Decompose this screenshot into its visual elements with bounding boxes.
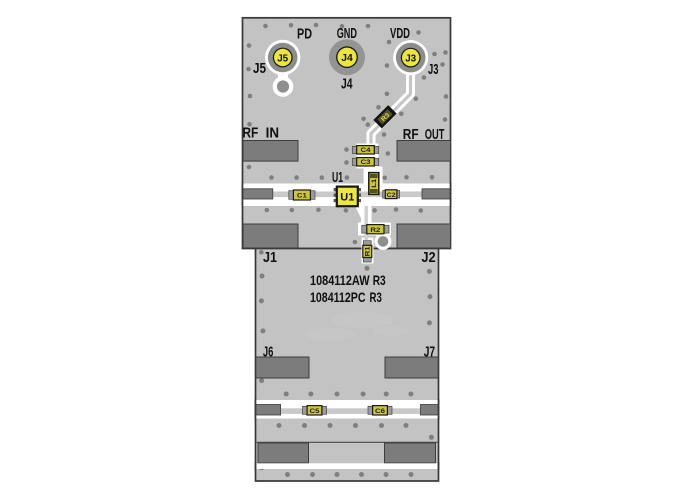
svg-text:J5: J5 bbox=[253, 61, 266, 77]
svg-text:J3: J3 bbox=[428, 62, 439, 78]
svg-text:J1: J1 bbox=[263, 250, 277, 266]
svg-text:R1: R1 bbox=[364, 246, 371, 257]
svg-text:U1: U1 bbox=[340, 192, 354, 204]
svg-text:C6: C6 bbox=[375, 408, 386, 415]
svg-text:J2: J2 bbox=[421, 250, 435, 266]
svg-text:J6: J6 bbox=[263, 345, 274, 361]
svg-text:J3: J3 bbox=[405, 53, 416, 64]
svg-text:C2: C2 bbox=[387, 192, 397, 199]
svg-text:J7: J7 bbox=[424, 345, 435, 361]
svg-text:C3: C3 bbox=[361, 159, 372, 166]
svg-text:GND: GND bbox=[337, 26, 357, 42]
svg-text:C5: C5 bbox=[310, 408, 321, 415]
svg-text:C4: C4 bbox=[361, 147, 372, 154]
svg-text:C1: C1 bbox=[297, 193, 308, 200]
svg-text:VDD: VDD bbox=[390, 26, 410, 42]
svg-text:1084112AWR3: 1084112AWR3 bbox=[310, 273, 386, 288]
svg-text:J5: J5 bbox=[277, 53, 288, 64]
svg-text:U1: U1 bbox=[332, 170, 343, 186]
svg-text:J4: J4 bbox=[341, 53, 353, 64]
svg-text:PD: PD bbox=[297, 27, 312, 43]
svg-text:L1: L1 bbox=[371, 178, 378, 188]
svg-text:1084112PCR3: 1084112PCR3 bbox=[310, 290, 382, 305]
svg-text:J4: J4 bbox=[341, 77, 353, 93]
svg-text:R2: R2 bbox=[370, 227, 381, 234]
